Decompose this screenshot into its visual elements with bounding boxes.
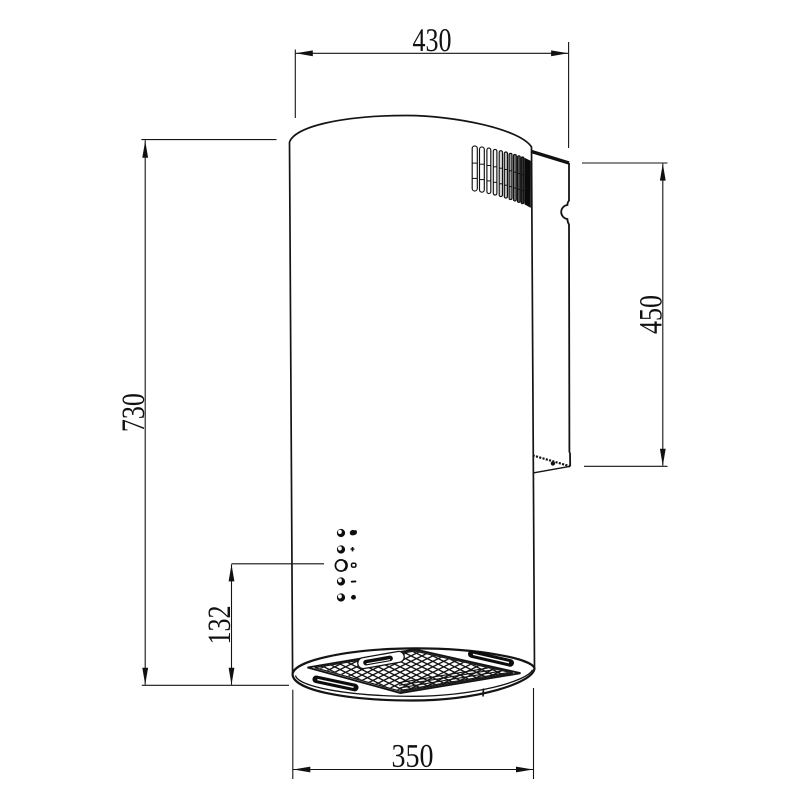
svg-text:430: 430 [412,23,451,59]
svg-text:450: 450 [634,295,670,334]
svg-text:132: 132 [202,606,238,645]
svg-text:350: 350 [391,739,433,775]
svg-text:730: 730 [116,393,152,432]
